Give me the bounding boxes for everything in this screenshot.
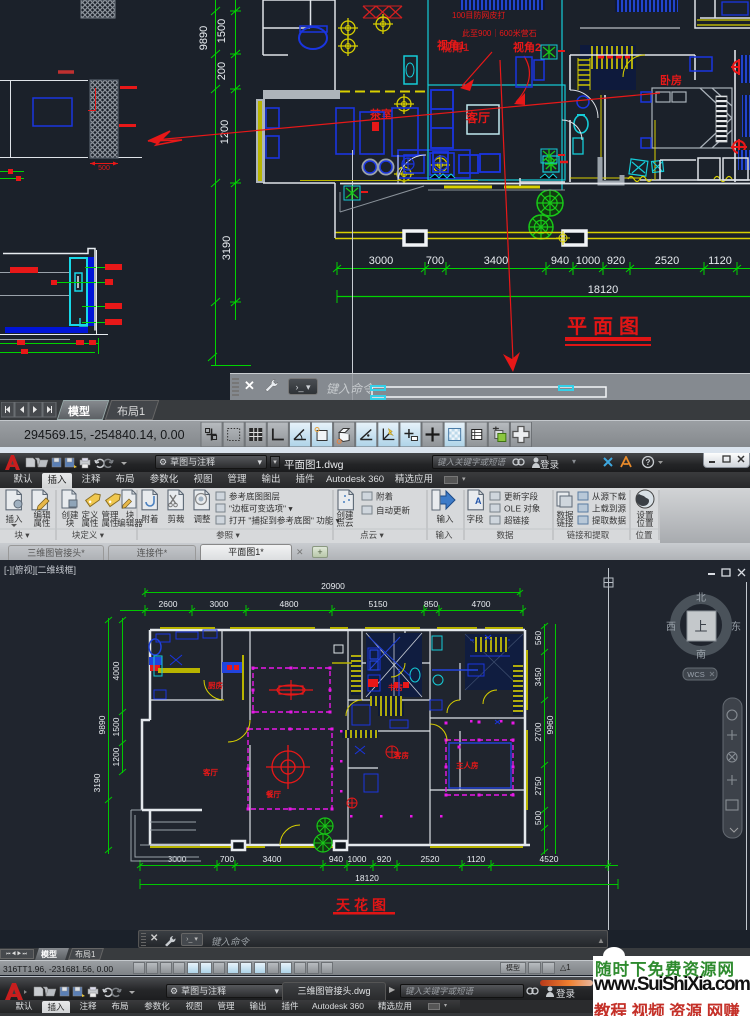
- svg-text:插入: 插入: [5, 514, 23, 524]
- svg-text:2700: 2700: [533, 722, 543, 741]
- svg-text:自动更新: 自动更新: [376, 506, 411, 516]
- svg-text:卧房: 卧房: [660, 73, 682, 87]
- svg-text:北: 北: [696, 592, 706, 604]
- svg-text:20900: 20900: [321, 581, 345, 591]
- svg-text:WCS: WCS: [687, 670, 705, 679]
- svg-text:940: 940: [329, 854, 343, 864]
- svg-text:3400: 3400: [263, 854, 282, 864]
- svg-text:700: 700: [220, 854, 234, 864]
- svg-text:块定义 ▾: 块定义 ▾: [72, 530, 105, 540]
- svg-text:属性: 属性: [81, 518, 99, 528]
- svg-text:560: 560: [533, 631, 543, 645]
- svg-text:参照 ▾: 参照 ▾: [216, 530, 240, 540]
- svg-text:1000: 1000: [576, 255, 600, 267]
- svg-text:2750: 2750: [533, 776, 543, 795]
- svg-text:A: A: [475, 496, 482, 506]
- svg-text:5150: 5150: [369, 599, 388, 609]
- svg-text:3190: 3190: [221, 236, 233, 260]
- svg-text:3400: 3400: [484, 255, 508, 267]
- svg-text:920: 920: [377, 854, 391, 864]
- svg-text:1500: 1500: [111, 717, 121, 736]
- svg-text:编辑器: 编辑器: [117, 518, 143, 528]
- svg-text:18120: 18120: [355, 873, 379, 883]
- svg-text:提取数据: 提取数据: [592, 516, 627, 526]
- svg-text:200: 200: [216, 62, 228, 80]
- svg-text:天花图: 天花图: [336, 897, 390, 913]
- svg-text:1120: 1120: [467, 854, 486, 864]
- svg-text:2600: 2600: [159, 599, 178, 609]
- svg-text:940: 940: [551, 255, 569, 267]
- svg-text:更新字段: 更新字段: [504, 492, 539, 502]
- svg-text:3190: 3190: [92, 773, 102, 792]
- svg-text:客厅: 客厅: [465, 110, 490, 125]
- svg-text:附着: 附着: [141, 514, 158, 524]
- svg-text:9890: 9890: [198, 26, 210, 50]
- svg-text:4000: 4000: [111, 661, 121, 680]
- svg-text:剪裁: 剪裁: [167, 514, 185, 524]
- svg-text:点云 ▾: 点云 ▾: [360, 530, 384, 540]
- svg-text:4800: 4800: [280, 599, 299, 609]
- svg-text:1120: 1120: [708, 255, 732, 267]
- svg-text:数据: 数据: [496, 530, 514, 540]
- svg-text:调整: 调整: [193, 514, 211, 524]
- svg-text:输入: 输入: [436, 514, 454, 524]
- svg-text:位置: 位置: [636, 518, 654, 528]
- svg-text:超链接: 超链接: [504, 516, 530, 526]
- svg-text:9960: 9960: [545, 715, 555, 734]
- svg-text:4700: 4700: [472, 599, 491, 609]
- svg-text:客厅: 客厅: [202, 767, 218, 777]
- svg-text:此至900｜600米营石: 此至900｜600米营石: [462, 28, 537, 38]
- svg-text:链接和提取: 链接和提取: [567, 530, 610, 540]
- svg-text:3000: 3000: [210, 599, 229, 609]
- svg-text:块 ▾: 块 ▾: [14, 530, 30, 540]
- svg-text:3450: 3450: [533, 667, 543, 686]
- svg-text:上载到源: 上载到源: [592, 504, 627, 514]
- svg-text:输入: 输入: [435, 530, 453, 540]
- svg-text:属性: 属性: [33, 518, 51, 528]
- svg-text:3000: 3000: [369, 255, 393, 267]
- svg-text:OLE 对象: OLE 对象: [504, 504, 541, 514]
- svg-text:南: 南: [696, 648, 706, 661]
- svg-text:上: 上: [694, 619, 707, 634]
- svg-text:?: ?: [646, 458, 651, 467]
- svg-text:从源下载: 从源下载: [592, 492, 627, 502]
- svg-text:字段: 字段: [466, 514, 484, 524]
- svg-text:附着: 附着: [376, 492, 393, 502]
- svg-text:1000: 1000: [348, 854, 367, 864]
- svg-text:1200: 1200: [111, 747, 121, 766]
- svg-text:1200: 1200: [219, 120, 231, 144]
- svg-text:700: 700: [426, 255, 444, 267]
- svg-text:[-][俯视][二维线框]: [-][俯视][二维线框]: [4, 564, 76, 575]
- svg-text:东: 东: [731, 620, 741, 633]
- svg-text:18120: 18120: [588, 284, 619, 296]
- svg-text:视角1: 视角1: [441, 40, 469, 54]
- svg-text:厨房: 厨房: [208, 680, 223, 690]
- svg-text:客房: 客房: [393, 750, 409, 760]
- svg-text:920: 920: [607, 255, 625, 267]
- svg-text:3000: 3000: [168, 854, 187, 864]
- svg-text:4520: 4520: [540, 854, 559, 864]
- svg-text:点云: 点云: [336, 518, 354, 528]
- svg-text:链接: 链接: [556, 518, 574, 528]
- svg-text:主人房: 主人房: [456, 760, 479, 770]
- svg-text:平面图: 平面图: [567, 315, 645, 338]
- svg-text:视角2: 视角2: [513, 40, 541, 54]
- svg-text:2520: 2520: [655, 255, 679, 267]
- svg-text:打开 "捕捉到参考底图" 功能 ▾: 打开 "捕捉到参考底图" 功能 ▾: [229, 516, 341, 526]
- svg-text:位置: 位置: [635, 530, 653, 540]
- svg-text:850: 850: [424, 599, 438, 609]
- svg-text:西: 西: [666, 622, 676, 633]
- svg-text:"边框可变选项" ▾: "边框可变选项" ▾: [229, 504, 293, 514]
- svg-text:500: 500: [533, 811, 543, 825]
- svg-text:餐厅: 餐厅: [265, 789, 281, 799]
- svg-text:1500: 1500: [216, 19, 228, 43]
- svg-text:9890: 9890: [97, 715, 107, 734]
- svg-text:100目防网皮打: 100目防网皮打: [452, 10, 505, 20]
- svg-text:500: 500: [98, 165, 110, 172]
- svg-text:块: 块: [66, 518, 75, 528]
- svg-text:参考底图图层: 参考底图图层: [229, 492, 280, 502]
- svg-text:2520: 2520: [421, 854, 440, 864]
